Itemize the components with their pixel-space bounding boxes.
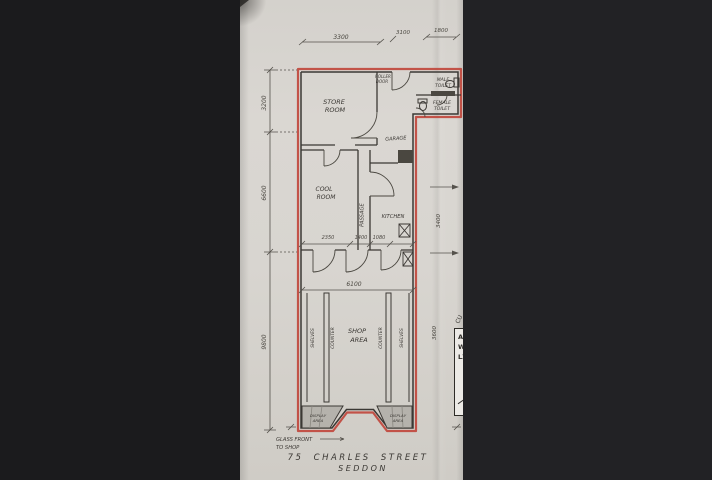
label-shelves-right: SHELVES (399, 328, 405, 348)
note-glass-front: GLASS FRONT (276, 437, 313, 443)
stamp-diagonal-line (458, 391, 463, 404)
dim-shop-width: 6100 (346, 281, 361, 288)
floorplan-drawing: 3300 3100 1800 3200 6600 9800 3400 3600 … (240, 0, 463, 480)
door-arc-shop-right (381, 250, 401, 270)
dim-extensions-left (276, 70, 297, 252)
stamp-line-1: AR (458, 332, 463, 342)
door-arc-passage-kitchen (370, 172, 394, 196)
label-roller-door-2: DOOR (376, 79, 388, 84)
label-display-right-2: AREA (392, 418, 404, 423)
door-arc-shop-mid (346, 250, 368, 272)
counter-left (324, 293, 329, 402)
dim-top-2: 3100 (396, 30, 410, 36)
arrowhead-right-upper (452, 185, 459, 190)
door-arc-store-room (351, 112, 377, 138)
dim-left-2: 6600 (261, 185, 268, 200)
label-female-toilet-2: TOILET (434, 106, 451, 112)
architect-stamp: CU AR W. LX (452, 314, 463, 434)
label-male-toilet-1: MALE (437, 77, 450, 83)
kitchen-heater (399, 224, 410, 237)
label-cool-room-2: ROOM (317, 194, 337, 201)
label-passage: PASSAGE (360, 202, 366, 226)
note-to-shop: TO SHOP (276, 445, 300, 451)
dim-top-1: 3300 (333, 34, 348, 41)
dim-right-1: 3400 (436, 214, 442, 228)
dim-left-1: 3200 (261, 95, 268, 110)
label-male-toilet-2: TOILET (435, 83, 452, 89)
label-display-left-2: AREA (312, 418, 324, 423)
stamp-line-2: W. (458, 342, 463, 352)
dim-top-3: 1800 (434, 28, 448, 34)
arrowhead-right-lower (452, 251, 459, 256)
label-kitchen: KITCHEN (382, 214, 405, 220)
door-arc-cool-room (324, 150, 340, 166)
stamp-box: AR W. LX (454, 328, 463, 416)
plan-title: 75 CHARLES STREET (288, 453, 429, 463)
garage-duct (398, 150, 413, 163)
paper-corner-mark (240, 0, 249, 7)
dim-right-2: 3600 (432, 326, 438, 340)
screenshot-stage: 3300 3100 1800 3200 6600 9800 3400 3600 … (0, 0, 712, 480)
door-arc-shop-left (313, 250, 335, 272)
dim-mid-2: 1400 (355, 235, 368, 241)
counter-right (386, 293, 391, 402)
label-female-toilet-1: FEMALE (433, 100, 451, 106)
label-shop-area-1: SHOP (348, 327, 366, 335)
label-counter-right: COUNTER (378, 327, 384, 349)
male-toilet-bench (431, 91, 455, 96)
label-cool-room-1: COOL (316, 186, 333, 193)
floorplan-photo: 3300 3100 1800 3200 6600 9800 3400 3600 … (240, 0, 463, 480)
plan-subtitle: SEDDON (338, 464, 388, 473)
dim-left-3: 9800 (261, 334, 268, 349)
label-shelves-left: SHELVES (310, 328, 316, 348)
label-garage: GARAGE (385, 135, 407, 143)
glass-front-arrow (320, 438, 344, 441)
dim-mid-1: 2350 (322, 235, 335, 241)
label-counter-left: COUNTER (330, 327, 336, 349)
letterbox-right (463, 0, 712, 480)
dim-mid-3: 1080 (373, 235, 386, 241)
shop-cupboard (403, 252, 413, 266)
label-shop-area-2: AREA (349, 336, 368, 344)
label-store-room-1: STORE (323, 98, 346, 106)
letterbox-left (0, 0, 240, 480)
stamp-rotated-text: CU (454, 314, 463, 325)
dim-line-top (302, 37, 456, 42)
dim-ticks-top (299, 34, 460, 45)
label-store-room-2: ROOM (325, 106, 346, 114)
stamp-line-3: LX (458, 352, 463, 362)
door-arc-roller-door (392, 72, 410, 90)
